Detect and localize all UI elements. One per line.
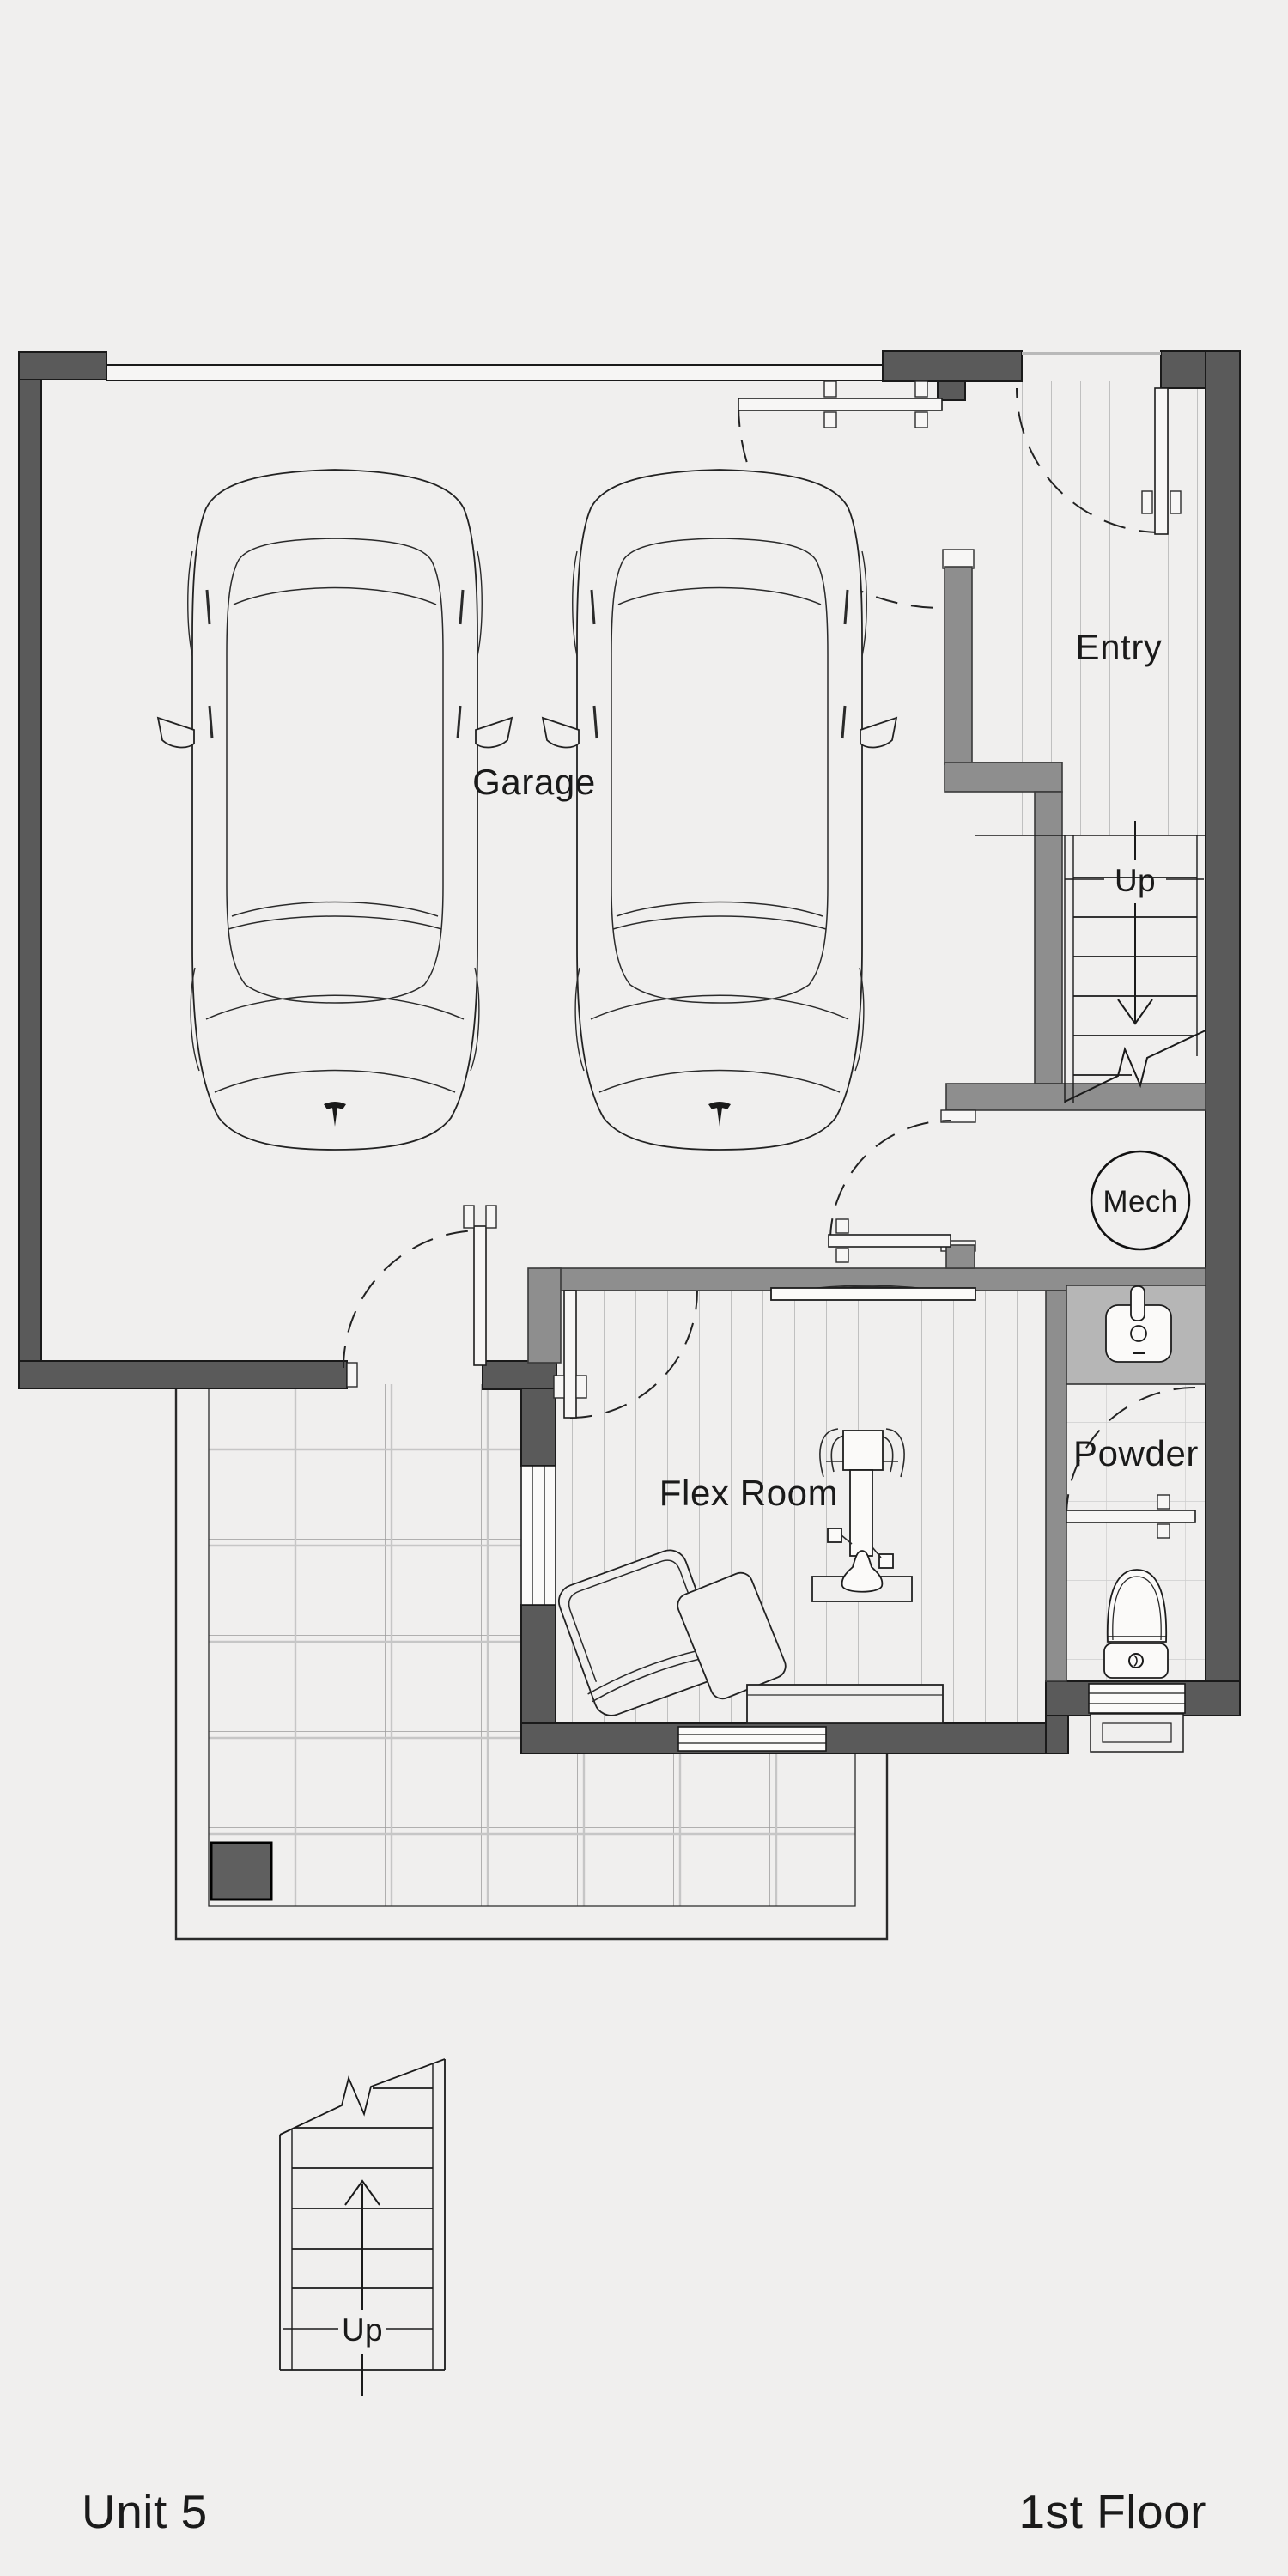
powder-label: Powder	[1073, 1433, 1199, 1473]
floor-plan-drawing: Up Mech	[0, 0, 1288, 2576]
garage-label: Garage	[472, 762, 596, 802]
mech-label: Mech	[1103, 1185, 1177, 1218]
wall-shelf	[771, 1285, 975, 1300]
flex-room-label: Flex Room	[659, 1473, 838, 1513]
lower-staircase: Up	[280, 2059, 445, 2396]
entry-label: Entry	[1075, 627, 1162, 667]
entry-stair-up-label: Up	[1115, 863, 1156, 898]
flex-west-window	[521, 1466, 556, 1605]
mech-closet: Mech	[1091, 1151, 1189, 1249]
unit-title: Unit 5	[82, 2484, 208, 2539]
flex-south-window	[678, 1727, 826, 1751]
car-left	[158, 470, 512, 1150]
entry-stair-direction-arrow	[1065, 821, 1204, 1024]
entry-staircase: Up	[975, 821, 1206, 1103]
garage-hall-door	[829, 1121, 951, 1262]
bench	[747, 1685, 943, 1723]
garage-patio-door	[343, 1206, 496, 1387]
powder-south-window	[1089, 1684, 1185, 1752]
vanity-sink	[1066, 1285, 1206, 1384]
car-right	[543, 470, 896, 1150]
garage-overhead-door	[106, 365, 883, 380]
floor-title: 1st Floor	[1019, 2484, 1206, 2539]
deck-post	[211, 1843, 271, 1899]
floor-plan-page: Up Mech	[0, 0, 1288, 2576]
lower-stair-up-label: Up	[342, 2312, 383, 2348]
